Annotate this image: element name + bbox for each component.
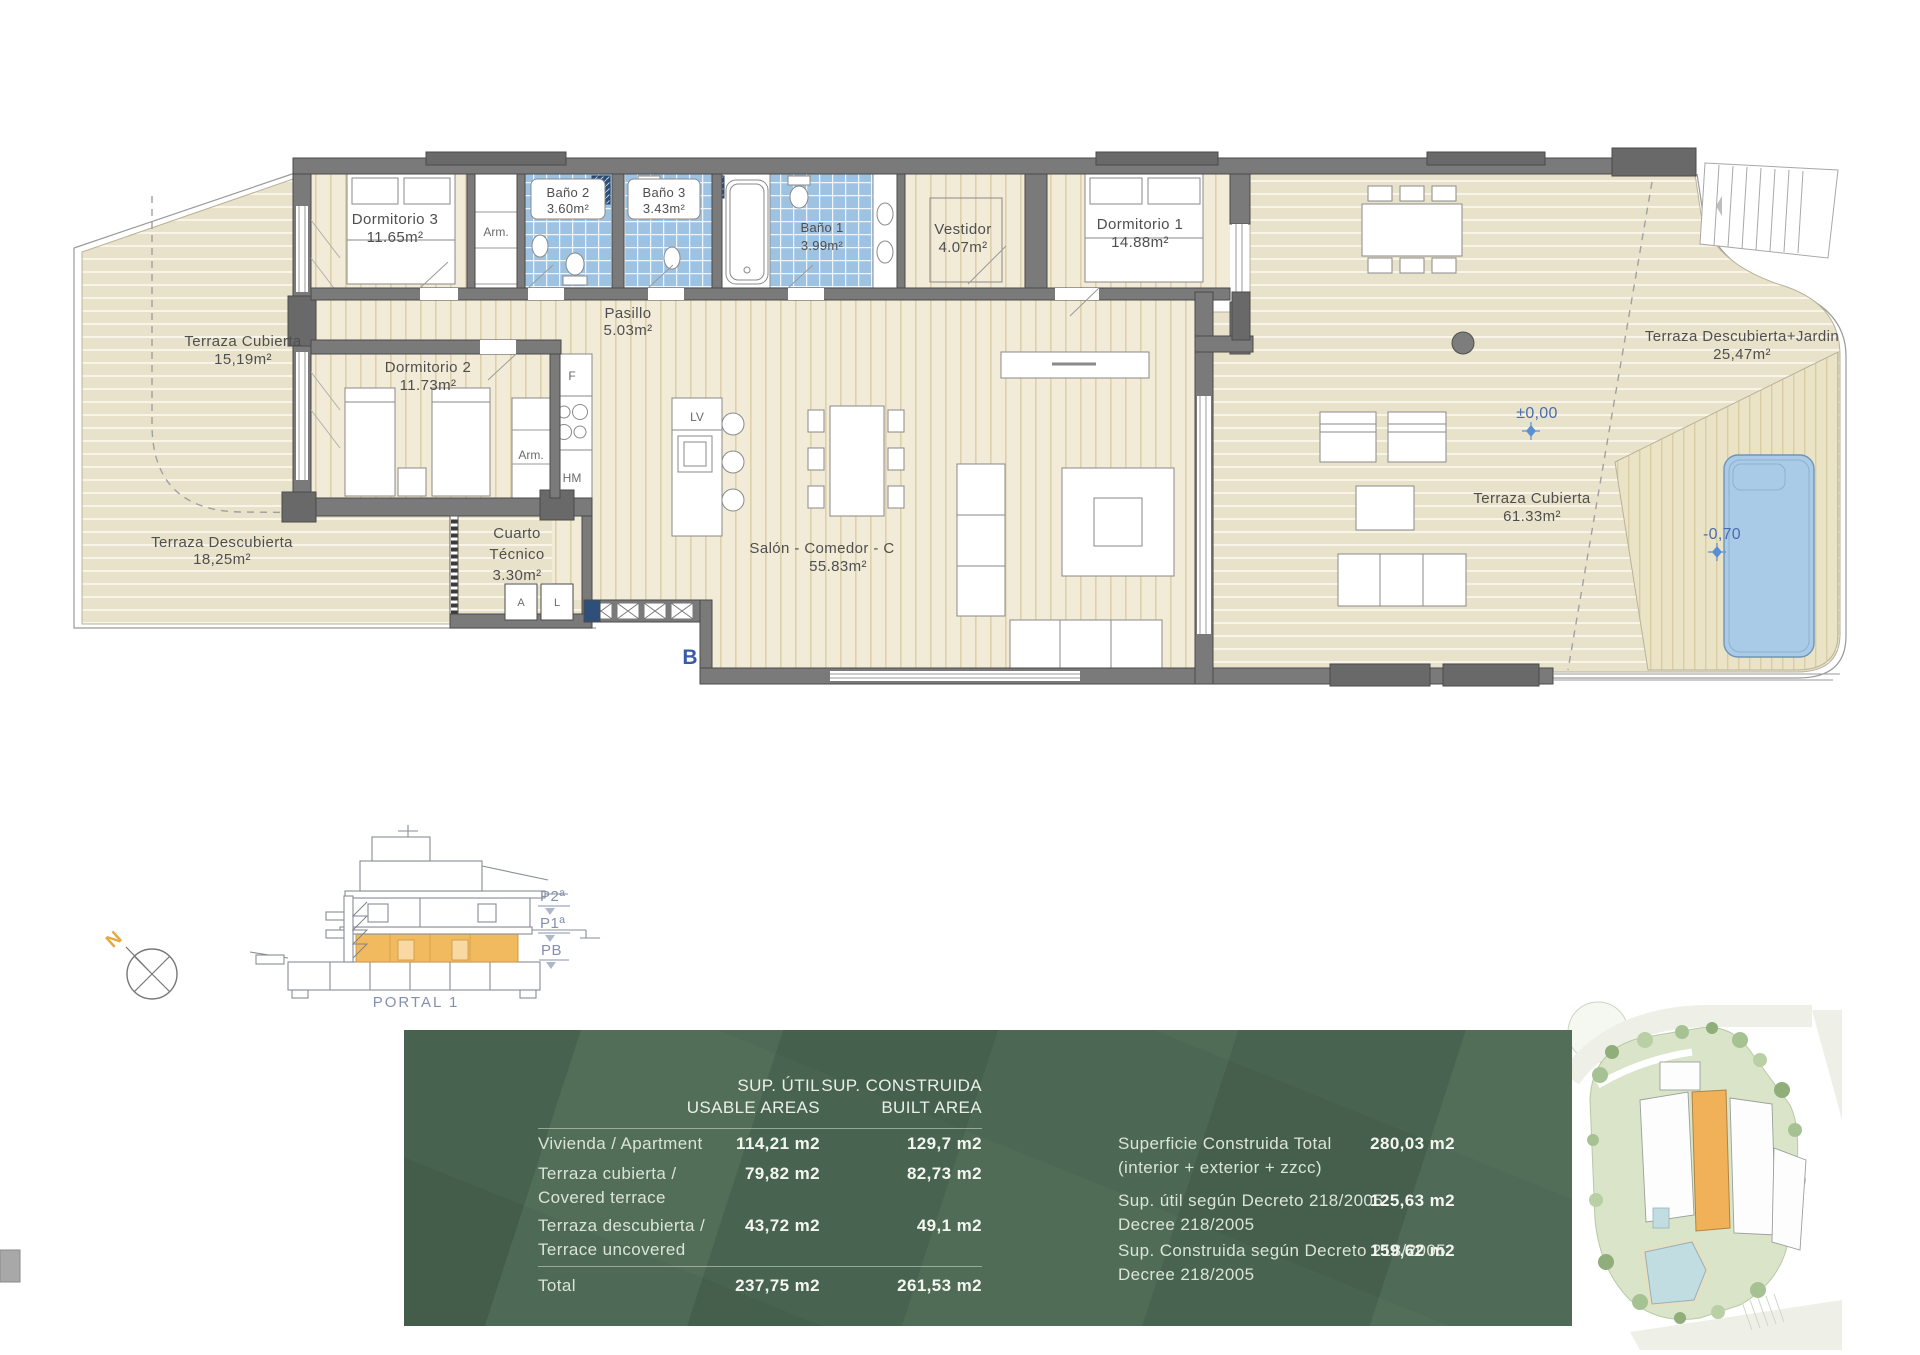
section-caption: PORTAL 1 [373, 994, 460, 1011]
room-label-salon: Salón - Comedor - C [749, 540, 894, 557]
svg-text:18,25m²: 18,25m² [193, 551, 251, 568]
section-marker-b: B [682, 646, 697, 669]
svg-text:61.33m²: 61.33m² [1503, 508, 1561, 525]
dishwasher-label: LV [690, 410, 704, 424]
detail-util-decreto-label: Sup. útil según Decreto 218/2005 [1118, 1191, 1383, 1211]
room-label-terraza-descubierta: Terraza Descubierta [151, 534, 293, 551]
room-label-vestidor: Vestidor [934, 221, 991, 238]
row-terraza-cubierta-label: Terraza cubierta / [538, 1164, 677, 1184]
svg-text:25,47m²: 25,47m² [1713, 346, 1771, 363]
header-useful-1: SUP. ÚTIL [737, 1076, 820, 1096]
summary-panel: SUP. ÚTIL USABLE AREAS SUP. CONSTRUIDA B… [404, 1030, 1572, 1326]
closet2-label: Arm. [518, 448, 543, 462]
svg-text:14.88m²: 14.88m² [1111, 234, 1169, 251]
closet-label: Arm. [483, 225, 508, 239]
edge-fragment [0, 1250, 20, 1282]
svg-text:4.07m²: 4.07m² [938, 239, 987, 256]
detail-construida-total-label: Superficie Construida Total [1118, 1134, 1332, 1154]
svg-text:11.65m²: 11.65m² [367, 229, 424, 246]
level-main-label: ±0,00 [1516, 405, 1557, 422]
svg-text:15,19m²: 15,19m² [214, 351, 272, 368]
header-built-1: SUP. CONSTRUIDA [821, 1076, 982, 1096]
row-vivienda-label: Vivienda / Apartment [538, 1134, 703, 1154]
svg-text:Técnico: Técnico [489, 546, 544, 563]
level-pb-label: PB [541, 942, 562, 959]
room-label-bano3: Baño 3 [642, 185, 685, 200]
svg-text:11.73m²: 11.73m² [400, 377, 457, 394]
room-label-dormitorio2: Dormitorio 2 [385, 359, 472, 376]
table-divider-bottom [538, 1266, 982, 1267]
room-label-dormitorio3: Dormitorio 3 [352, 211, 439, 228]
row-terraza-descubierta-label: Terraza descubierta / [538, 1216, 705, 1236]
room-label-terraza-cubierta-izq: Terraza Cubierta [184, 333, 302, 350]
svg-text:3.43m²: 3.43m² [643, 201, 686, 216]
highlighted-unit [1692, 1090, 1730, 1231]
washer-label: A [517, 597, 525, 609]
dryer-label: L [554, 597, 560, 609]
north-indicator: N [102, 928, 126, 953]
room-label-bano2: Baño 2 [546, 185, 589, 200]
site-plan [1568, 1002, 1842, 1350]
level-p1-label: P1ª [540, 915, 565, 932]
level-p2-label: P2ª [540, 888, 565, 905]
svg-text:3.99m²: 3.99m² [801, 238, 844, 253]
room-label-bano1: Baño 1 [800, 220, 843, 235]
room-label-dormitorio1: Dormitorio 1 [1097, 216, 1184, 233]
svg-text:3.60m²: 3.60m² [547, 201, 590, 216]
page: Dormitorio 3 11.65m² Baño 2 3.60m² Baño … [0, 0, 1920, 1355]
room-label-pasillo: Pasillo [605, 305, 652, 322]
header-built-2: BUILT AREA [881, 1098, 982, 1118]
svg-text:5.03m²: 5.03m² [603, 322, 652, 339]
svg-text:3.30m²: 3.30m² [492, 567, 541, 584]
room-label-terraza-cubierta-der: Terraza Cubierta [1473, 490, 1591, 507]
hm-label: HM [563, 471, 582, 485]
room-label-jardin: Terraza Descubierta+Jardin [1645, 328, 1839, 345]
room-label-cuarto-tecnico: Cuarto [493, 525, 540, 542]
fridge-label: F [568, 369, 575, 383]
row-total-label: Total [538, 1276, 576, 1296]
level-pool-label: -0,70 [1703, 526, 1741, 543]
header-useful-2: USABLE AREAS [687, 1098, 820, 1118]
compass: N [102, 928, 177, 999]
pool [1724, 455, 1814, 657]
stairs [1700, 163, 1838, 258]
table-divider-top [538, 1128, 982, 1129]
svg-text:55.83m²: 55.83m² [809, 558, 867, 575]
